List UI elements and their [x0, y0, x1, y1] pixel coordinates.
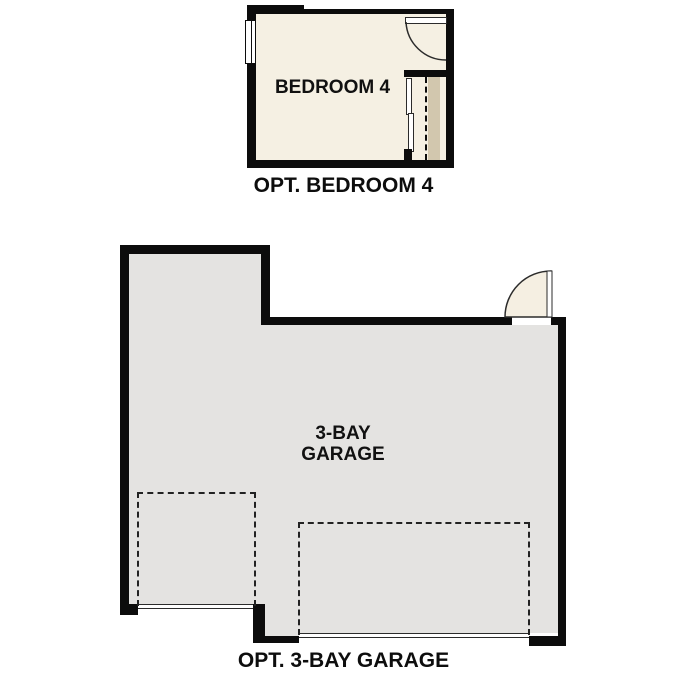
- garage-bay-outline-right: [298, 522, 530, 635]
- garage-wall-right: [558, 317, 566, 646]
- garage-wall-top-left: [120, 245, 270, 254]
- garage-wall-bottom-left-corner: [120, 604, 138, 615]
- garage-wall-top-main: [261, 317, 512, 325]
- closet-shelf: [428, 77, 440, 160]
- garage-room-label-line2: GARAGE: [263, 444, 423, 465]
- garage-wall-step-vertical: [261, 245, 270, 325]
- garage-bay-outline-left: [137, 492, 256, 606]
- garage-floor-bay-step: [265, 604, 299, 637]
- garage-wall-left: [120, 245, 129, 615]
- garage-wall-step-down-horizontal: [253, 636, 299, 643]
- garage-door-leaf: [547, 271, 552, 317]
- garage-wall-bottom-right-corner: [529, 636, 566, 646]
- garage-room-label-line1: 3-BAY: [263, 423, 423, 444]
- window-icon: [245, 20, 256, 64]
- floorplan-canvas: BEDROOM 4 OPT. BEDROOM 4 3-BAY GARAGE OP…: [0, 0, 687, 687]
- bedroom-caption: OPT. BEDROOM 4: [0, 174, 687, 197]
- bedroom-wall-top-right: [304, 9, 454, 14]
- closet-jamb: [404, 149, 412, 160]
- window-mullion: [251, 21, 252, 63]
- bedroom-wall-right: [446, 9, 454, 168]
- garage-door-swing: [505, 271, 551, 317]
- bedroom-door-leaf: [405, 17, 447, 24]
- closet-bypass-door-lower: [408, 113, 414, 152]
- bedroom-room-label: BEDROOM 4: [255, 77, 410, 98]
- closet-wall-top: [404, 70, 446, 77]
- garage-room-label: 3-BAY GARAGE: [263, 423, 423, 465]
- bedroom-wall-bottom: [247, 160, 454, 168]
- closet-rod: [425, 77, 427, 160]
- garage-caption: OPT. 3-BAY GARAGE: [0, 649, 687, 672]
